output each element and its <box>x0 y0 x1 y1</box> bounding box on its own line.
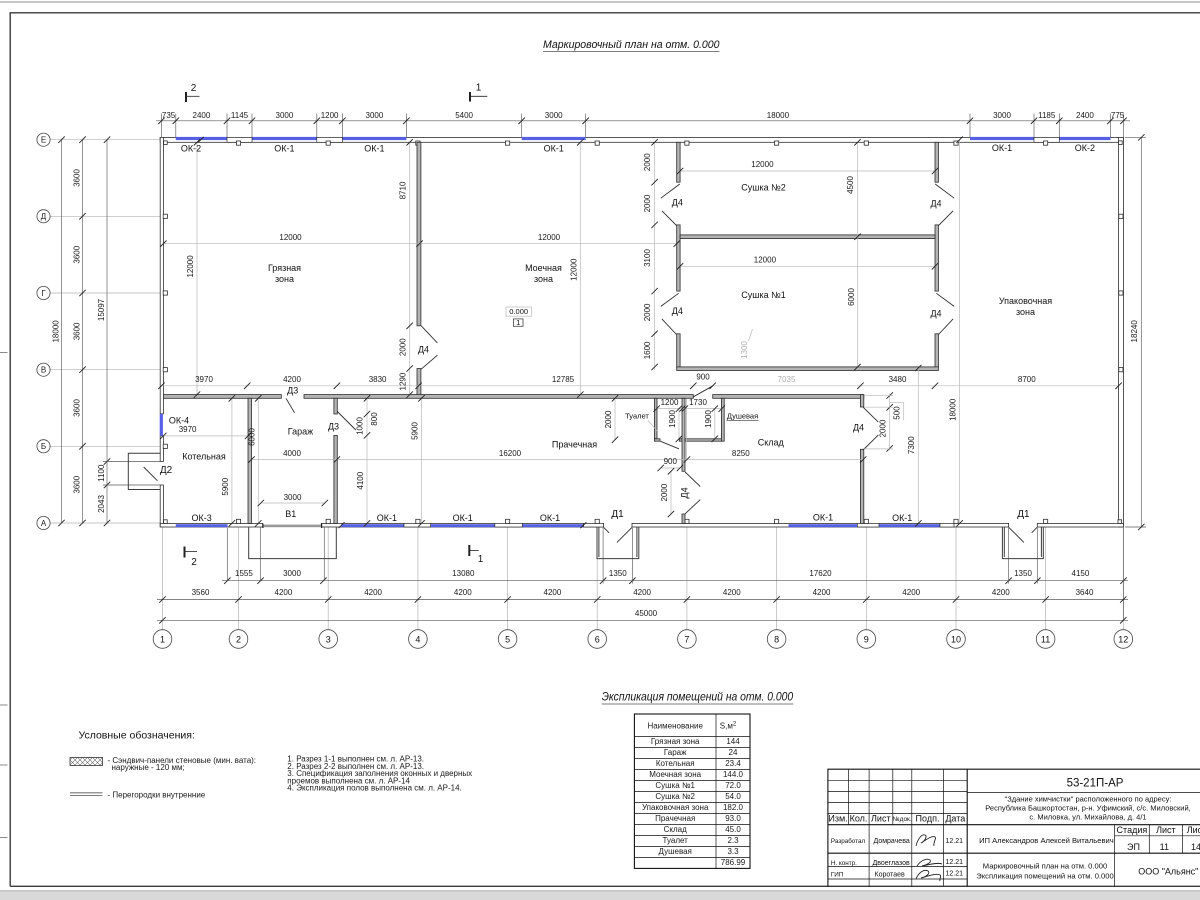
svg-text:Гараж: Гараж <box>664 748 687 757</box>
svg-text:18000: 18000 <box>51 320 60 343</box>
svg-text:Котельная: Котельная <box>182 452 226 462</box>
svg-text:12000: 12000 <box>538 233 561 242</box>
svg-text:ООО "Альянс": ООО "Альянс" <box>1138 866 1198 876</box>
svg-text:3600: 3600 <box>72 169 81 187</box>
svg-text:3.3: 3.3 <box>727 847 739 856</box>
svg-text:8700: 8700 <box>1018 375 1036 384</box>
svg-text:18000: 18000 <box>767 111 790 120</box>
svg-text:Наименование: Наименование <box>647 722 703 731</box>
svg-text:ОК-4: ОК-4 <box>169 416 189 426</box>
svg-text:775: 775 <box>1111 111 1125 120</box>
svg-text:53-21П-АР: 53-21П-АР <box>1067 778 1124 790</box>
svg-text:Прачечная: Прачечная <box>552 440 597 450</box>
svg-text:ОК-2: ОК-2 <box>181 144 201 154</box>
svg-text:"Здание химчистки" расположенн: "Здание химчистки" расположенного по адр… <box>1005 795 1172 804</box>
svg-text:54.0: 54.0 <box>725 792 741 801</box>
svg-text:Двоеглазов: Двоеглазов <box>873 860 910 867</box>
svg-text:ОК-1: ОК-1 <box>364 144 384 154</box>
svg-text:4200: 4200 <box>633 588 651 597</box>
svg-text:500: 500 <box>892 406 901 420</box>
svg-text:2: 2 <box>191 557 197 568</box>
svg-text:Г: Г <box>41 289 46 298</box>
svg-text:1185: 1185 <box>1038 111 1056 120</box>
svg-text:Моечная зона: Моечная зона <box>649 770 701 779</box>
svg-text:4100: 4100 <box>356 471 365 489</box>
svg-text:9: 9 <box>864 634 869 644</box>
svg-text:2000: 2000 <box>643 194 652 212</box>
svg-text:1: 1 <box>476 83 482 94</box>
svg-text:12.21: 12.21 <box>946 859 964 866</box>
svg-text:2000: 2000 <box>399 338 408 356</box>
svg-text:Д3: Д3 <box>328 422 339 432</box>
svg-text:10: 10 <box>951 634 961 644</box>
svg-text:ОК-1: ОК-1 <box>813 513 833 523</box>
svg-text:14: 14 <box>1191 842 1200 852</box>
svg-text:зона: зона <box>534 274 553 284</box>
svg-text:12.21: 12.21 <box>946 838 964 845</box>
svg-text:ОК-1: ОК-1 <box>377 513 397 523</box>
svg-text:8250: 8250 <box>732 449 750 458</box>
svg-text:1350: 1350 <box>1014 569 1032 578</box>
svg-text:800: 800 <box>370 412 379 426</box>
svg-text:Лист: Лист <box>871 814 891 824</box>
svg-text:Душевая: Душевая <box>658 847 691 856</box>
svg-text:Е: Е <box>41 136 46 145</box>
svg-text:2400: 2400 <box>1076 111 1094 120</box>
svg-text:4200: 4200 <box>283 375 301 384</box>
svg-text:Д3: Д3 <box>287 385 298 395</box>
svg-text:наружные - 120 мм;: наружные - 120 мм; <box>112 763 185 772</box>
svg-text:- Перегородки внутренние: - Перегородки внутренние <box>108 791 206 800</box>
svg-text:Душевая: Душевая <box>727 412 758 421</box>
svg-text:Туалет: Туалет <box>663 836 689 845</box>
svg-text:2000: 2000 <box>878 419 887 437</box>
svg-text:Дата: Дата <box>945 814 965 824</box>
svg-text:Коротаев: Коротаев <box>875 871 906 878</box>
svg-text:Сушка №2: Сушка №2 <box>655 792 695 801</box>
svg-text:Экспликация помещений на отм.: Экспликация помещений на отм. 0.000 <box>976 872 1113 881</box>
svg-text:Д: Д <box>41 212 47 221</box>
svg-text:6: 6 <box>595 634 600 644</box>
svg-text:12000: 12000 <box>751 160 774 169</box>
svg-text:зона: зона <box>1016 307 1035 317</box>
svg-text:12785: 12785 <box>552 375 575 384</box>
svg-text:1600: 1600 <box>643 341 652 359</box>
svg-text:В1: В1 <box>285 509 296 519</box>
svg-text:ОК-1: ОК-1 <box>992 143 1012 153</box>
svg-text:2000: 2000 <box>643 153 652 171</box>
svg-text:Д1: Д1 <box>611 509 624 520</box>
svg-text:1900: 1900 <box>704 410 713 428</box>
svg-text:900: 900 <box>664 457 678 466</box>
svg-text:1: 1 <box>516 318 520 327</box>
svg-text:Туалет: Туалет <box>625 411 649 420</box>
svg-text:735: 735 <box>162 111 176 120</box>
svg-text:ОК-3: ОК-3 <box>191 513 211 523</box>
svg-text:2043: 2043 <box>97 495 106 513</box>
svg-text:2000: 2000 <box>643 303 652 321</box>
svg-text:4000: 4000 <box>283 449 301 458</box>
svg-text:4. Экспликация полов выполнена: 4. Экспликация полов выполнена см. л. АР… <box>287 784 461 793</box>
svg-text:1300: 1300 <box>740 341 749 359</box>
svg-text:Маркировочный план на отм. 0.0: Маркировочный план на отм. 0.000 <box>543 39 720 51</box>
svg-text:3600: 3600 <box>72 475 81 493</box>
svg-text:4200: 4200 <box>454 588 472 597</box>
svg-text:Лист: Лист <box>1156 825 1176 835</box>
svg-text:Разработал: Разработал <box>831 837 866 845</box>
svg-text:Домрачева: Домрачева <box>874 838 910 845</box>
svg-text:ОК-1: ОК-1 <box>540 513 560 523</box>
svg-text:6000: 6000 <box>847 288 856 306</box>
svg-text:ОК-2: ОК-2 <box>1075 143 1095 153</box>
svg-text:3600: 3600 <box>72 399 81 417</box>
svg-text:2000: 2000 <box>604 410 613 428</box>
svg-text:6000: 6000 <box>248 428 257 446</box>
svg-text:ЭП: ЭП <box>1127 842 1140 852</box>
svg-text:3560: 3560 <box>192 588 210 597</box>
svg-text:ОК-1: ОК-1 <box>453 513 473 523</box>
svg-text:4200: 4200 <box>813 588 831 597</box>
svg-text:12000: 12000 <box>279 233 302 242</box>
svg-text:4200: 4200 <box>902 588 920 597</box>
svg-text:Грязная зона: Грязная зона <box>651 737 700 746</box>
svg-text:Прачечная: Прачечная <box>655 814 695 823</box>
svg-text:Н. контр.: Н. контр. <box>831 860 857 867</box>
svg-text:182.0: 182.0 <box>723 803 744 812</box>
svg-text:зона: зона <box>275 274 294 284</box>
svg-text:Упаковочная зона: Упаковочная зона <box>642 803 709 812</box>
svg-text:Гараж: Гараж <box>288 427 313 437</box>
svg-text:А: А <box>41 519 47 528</box>
svg-text:Подп.: Подп. <box>916 814 940 824</box>
svg-text:7300: 7300 <box>907 436 916 454</box>
svg-text:Д4: Д4 <box>853 423 864 433</box>
svg-text:Д4: Д4 <box>930 199 941 209</box>
svg-text:Маркировочный план на отм. 0.0: Маркировочный план на отм. 0.000 <box>983 862 1107 871</box>
svg-text:1350: 1350 <box>609 569 627 578</box>
svg-text:4200: 4200 <box>544 588 562 597</box>
svg-text:3970: 3970 <box>195 375 213 384</box>
svg-text:12000: 12000 <box>569 258 578 281</box>
svg-text:5: 5 <box>505 634 510 644</box>
svg-text:2: 2 <box>236 634 241 644</box>
svg-text:ИП Александров Алексей Виталье: ИП Александров Алексей Витальевич <box>979 836 1114 845</box>
svg-text:3830: 3830 <box>369 375 387 384</box>
svg-text:1145: 1145 <box>231 111 249 120</box>
svg-text:3000: 3000 <box>284 493 302 502</box>
svg-text:Сушка №2: Сушка №2 <box>741 183 786 193</box>
svg-text:1200: 1200 <box>661 398 679 407</box>
svg-text:Д1: Д1 <box>1017 509 1030 520</box>
svg-text:5400: 5400 <box>455 111 473 120</box>
svg-text:12: 12 <box>1118 634 1128 644</box>
svg-text:Упаковочная: Упаковочная <box>999 296 1052 306</box>
svg-text:с. Миловка, ул. Михайлова, д.: с. Миловка, ул. Михайлова, д. 4/1 <box>1029 813 1146 822</box>
svg-text:5900: 5900 <box>221 477 230 495</box>
svg-text:ОК-1: ОК-1 <box>892 513 912 523</box>
svg-text:4200: 4200 <box>992 588 1010 597</box>
svg-text:18000: 18000 <box>948 398 957 421</box>
svg-text:1100: 1100 <box>97 464 106 482</box>
svg-text:Склад: Склад <box>664 825 687 834</box>
svg-text:Изм.: Изм. <box>828 814 847 824</box>
svg-text:Котельная: Котельная <box>656 759 695 768</box>
svg-text:4150: 4150 <box>1072 569 1090 578</box>
svg-text:8710: 8710 <box>399 181 408 199</box>
svg-text:3: 3 <box>326 634 331 644</box>
svg-text:93.0: 93.0 <box>725 814 741 823</box>
svg-text:Лист: Лист <box>1187 825 1200 835</box>
svg-text:ГИП: ГИП <box>831 871 844 878</box>
svg-text:23.4: 23.4 <box>725 759 741 768</box>
svg-text:1730: 1730 <box>689 398 707 407</box>
svg-text:900: 900 <box>696 373 710 382</box>
svg-text:5900: 5900 <box>410 422 419 440</box>
svg-text:Д4: Д4 <box>930 309 941 319</box>
svg-text:4200: 4200 <box>275 588 293 597</box>
svg-text:Условные обозначения:: Условные обозначения: <box>79 730 195 742</box>
svg-text:3480: 3480 <box>889 375 907 384</box>
svg-text:Сушка №1: Сушка №1 <box>741 290 786 300</box>
svg-text:В: В <box>41 366 46 375</box>
svg-text:Д4: Д4 <box>672 306 683 316</box>
svg-text:Грязная: Грязная <box>268 263 301 273</box>
svg-text:17620: 17620 <box>809 569 832 578</box>
svg-text:1900: 1900 <box>668 410 677 428</box>
svg-text:2.3: 2.3 <box>727 836 739 845</box>
svg-text:Д4: Д4 <box>418 344 429 354</box>
svg-text:ОК-1: ОК-1 <box>274 144 294 154</box>
svg-text:12.21: 12.21 <box>946 871 964 878</box>
svg-text:24: 24 <box>729 748 738 757</box>
svg-text:ОК-1: ОК-1 <box>544 144 564 154</box>
svg-text:3640: 3640 <box>1076 588 1094 597</box>
svg-text:2: 2 <box>191 83 197 94</box>
svg-text:7035: 7035 <box>778 375 796 384</box>
svg-text:Б: Б <box>41 442 46 451</box>
svg-text:Склад: Склад <box>758 438 785 448</box>
svg-text:45.0: 45.0 <box>725 825 741 834</box>
svg-text:11: 11 <box>1160 842 1169 852</box>
svg-text:16200: 16200 <box>499 449 522 458</box>
svg-text:4500: 4500 <box>846 176 855 194</box>
svg-text:15097: 15097 <box>97 298 106 321</box>
svg-text:4200: 4200 <box>723 588 741 597</box>
svg-text:1: 1 <box>478 554 484 565</box>
svg-text:2400: 2400 <box>193 111 211 120</box>
svg-text:45000: 45000 <box>635 609 658 618</box>
svg-text:3600: 3600 <box>72 245 81 263</box>
svg-text:0.000: 0.000 <box>509 307 528 316</box>
svg-text:3000: 3000 <box>276 111 294 120</box>
svg-text:1200: 1200 <box>321 111 339 120</box>
svg-text:Республика Башкортостан, р-н.: Республика Башкортостан, р-н. Уфимский, … <box>985 804 1191 813</box>
svg-text:Экспликация помещений на отм.: Экспликация помещений на отм. 0.000 <box>602 692 794 704</box>
svg-text:3000: 3000 <box>993 111 1011 120</box>
svg-text:1: 1 <box>160 634 165 644</box>
svg-text:1000: 1000 <box>355 417 364 435</box>
svg-text:1290: 1290 <box>399 372 408 390</box>
svg-text:72.0: 72.0 <box>725 781 741 790</box>
svg-text:3970: 3970 <box>179 425 197 434</box>
svg-text:11: 11 <box>1041 634 1050 644</box>
svg-text:1555: 1555 <box>235 569 253 578</box>
svg-text:Д2: Д2 <box>160 465 173 476</box>
svg-text:144: 144 <box>726 737 740 746</box>
svg-text:7: 7 <box>684 634 689 644</box>
svg-text:8: 8 <box>774 634 779 644</box>
svg-text:3100: 3100 <box>643 249 652 267</box>
svg-text:3000: 3000 <box>366 111 384 120</box>
svg-text:Моечная: Моечная <box>525 263 562 273</box>
svg-text:18240: 18240 <box>1130 320 1139 343</box>
svg-text:3600: 3600 <box>72 322 81 340</box>
svg-text:3000: 3000 <box>283 569 301 578</box>
svg-text:4200: 4200 <box>364 588 382 597</box>
svg-text:2000: 2000 <box>660 483 669 501</box>
svg-text:12000: 12000 <box>754 255 777 264</box>
svg-text:786.99: 786.99 <box>721 858 746 867</box>
svg-text:4: 4 <box>415 634 420 644</box>
svg-text:12000: 12000 <box>186 255 195 278</box>
svg-text:13080: 13080 <box>452 569 475 578</box>
svg-text:Стадия: Стадия <box>1117 825 1148 835</box>
svg-text:3000: 3000 <box>545 111 563 120</box>
svg-text:144.0: 144.0 <box>723 770 744 779</box>
svg-text:Д4: Д4 <box>680 487 690 498</box>
svg-text:№док.: №док. <box>893 816 912 823</box>
svg-text:Кол.: Кол. <box>850 814 868 824</box>
svg-text:Сушка №1: Сушка №1 <box>655 781 695 790</box>
svg-text:Д4: Д4 <box>672 197 683 207</box>
